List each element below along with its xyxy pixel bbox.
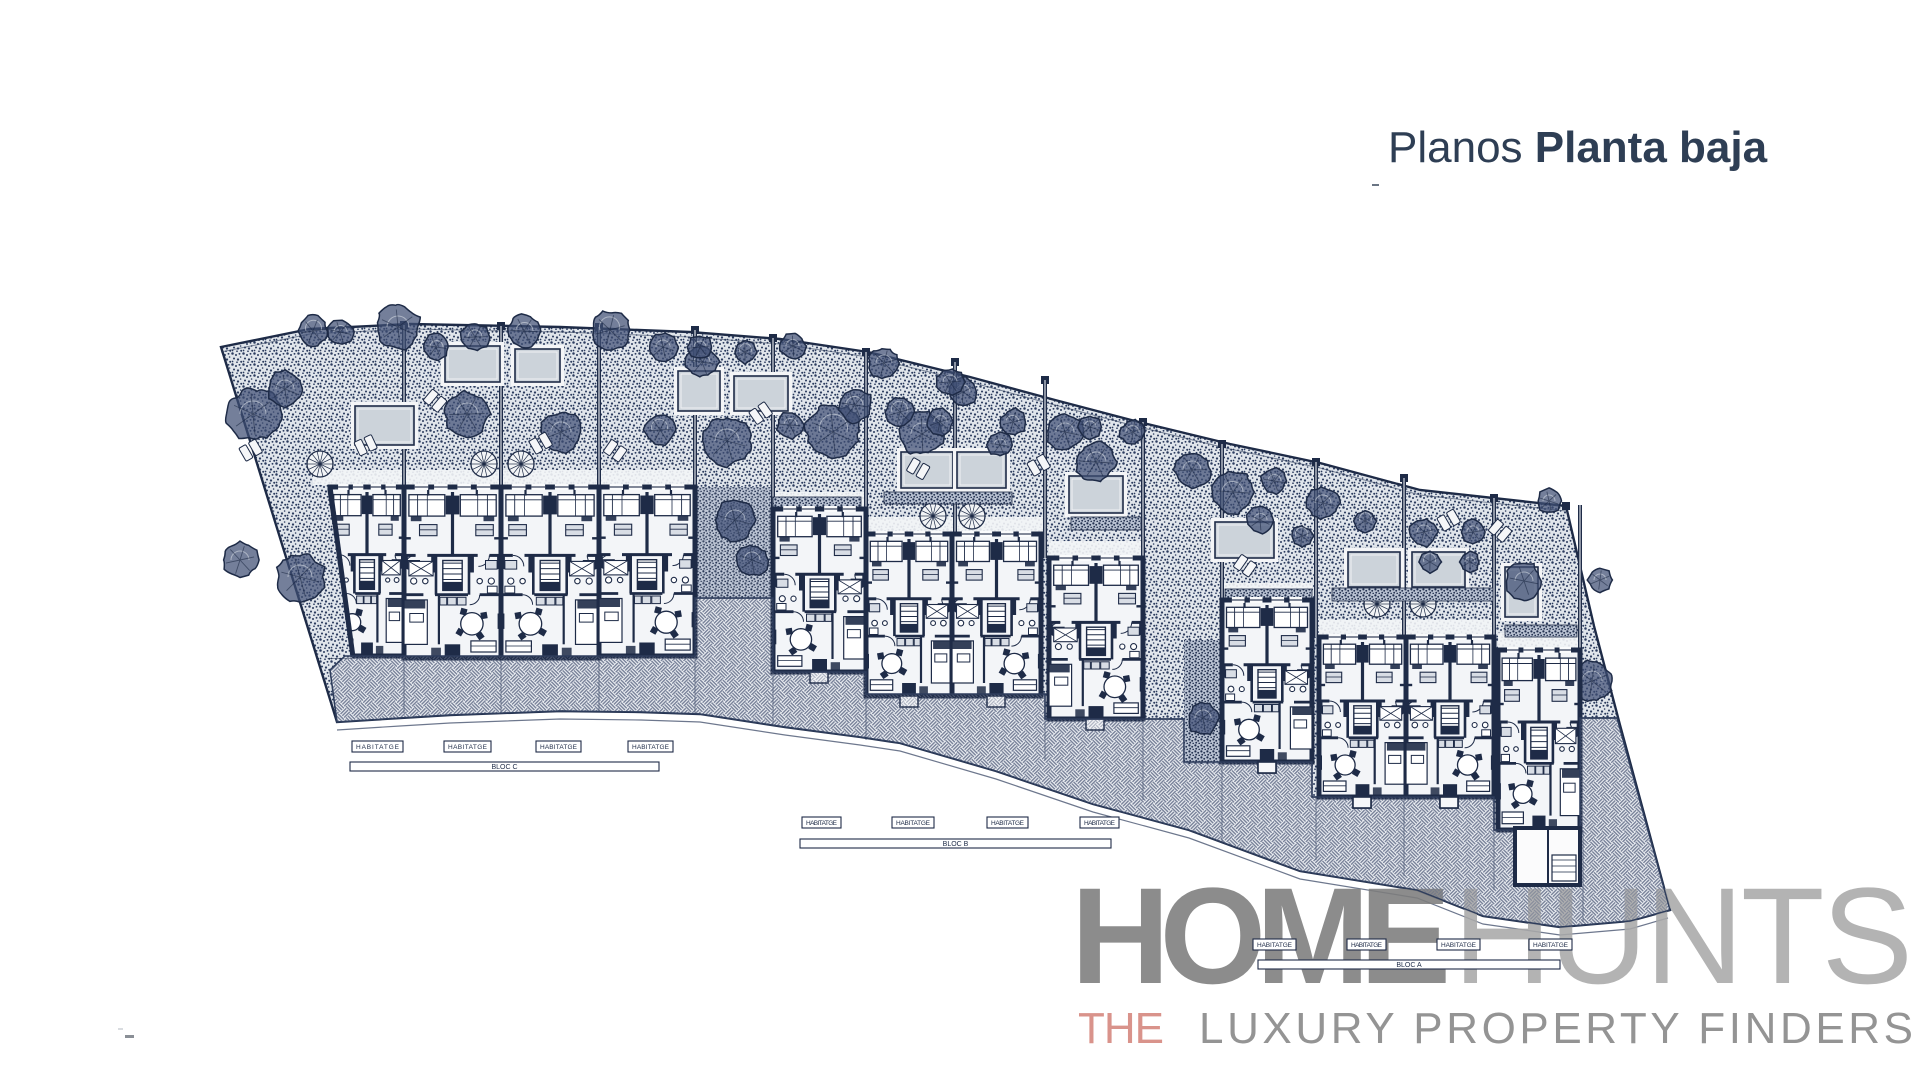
svg-text:HABITATGE: HABITATGE xyxy=(991,820,1025,827)
svg-text:HABITATGE: HABITATGE xyxy=(540,744,578,751)
svg-text:HABITATGE: HABITATGE xyxy=(1351,942,1383,949)
svg-text:BLOC C: BLOC C xyxy=(491,764,517,771)
svg-text:BLOC A: BLOC A xyxy=(1396,962,1422,969)
svg-text:HABITATGE: HABITATGE xyxy=(1084,820,1116,827)
svg-text:HABITATGE: HABITATGE xyxy=(1533,942,1569,949)
svg-text:Planos Planta baja: Planos Planta baja xyxy=(1388,123,1768,172)
svg-text:LUXURY PROPERTY FINDERS: LUXURY PROPERTY FINDERS xyxy=(1199,1004,1913,1053)
svg-text:HABITATGE: HABITATGE xyxy=(806,820,838,827)
svg-text:HABITATGE: HABITATGE xyxy=(632,744,670,751)
svg-text:HABITATGE: HABITATGE xyxy=(896,820,931,827)
svg-text:HABITATGE: HABITATGE xyxy=(448,744,488,751)
svg-text:HABITATGE: HABITATGE xyxy=(356,744,400,751)
svg-text:HABITATGE: HABITATGE xyxy=(1257,942,1293,949)
svg-text:BLOC B: BLOC B xyxy=(943,841,969,848)
svg-text:THE: THE xyxy=(1078,1004,1164,1053)
svg-text:HABITATGE: HABITATGE xyxy=(1441,942,1477,949)
